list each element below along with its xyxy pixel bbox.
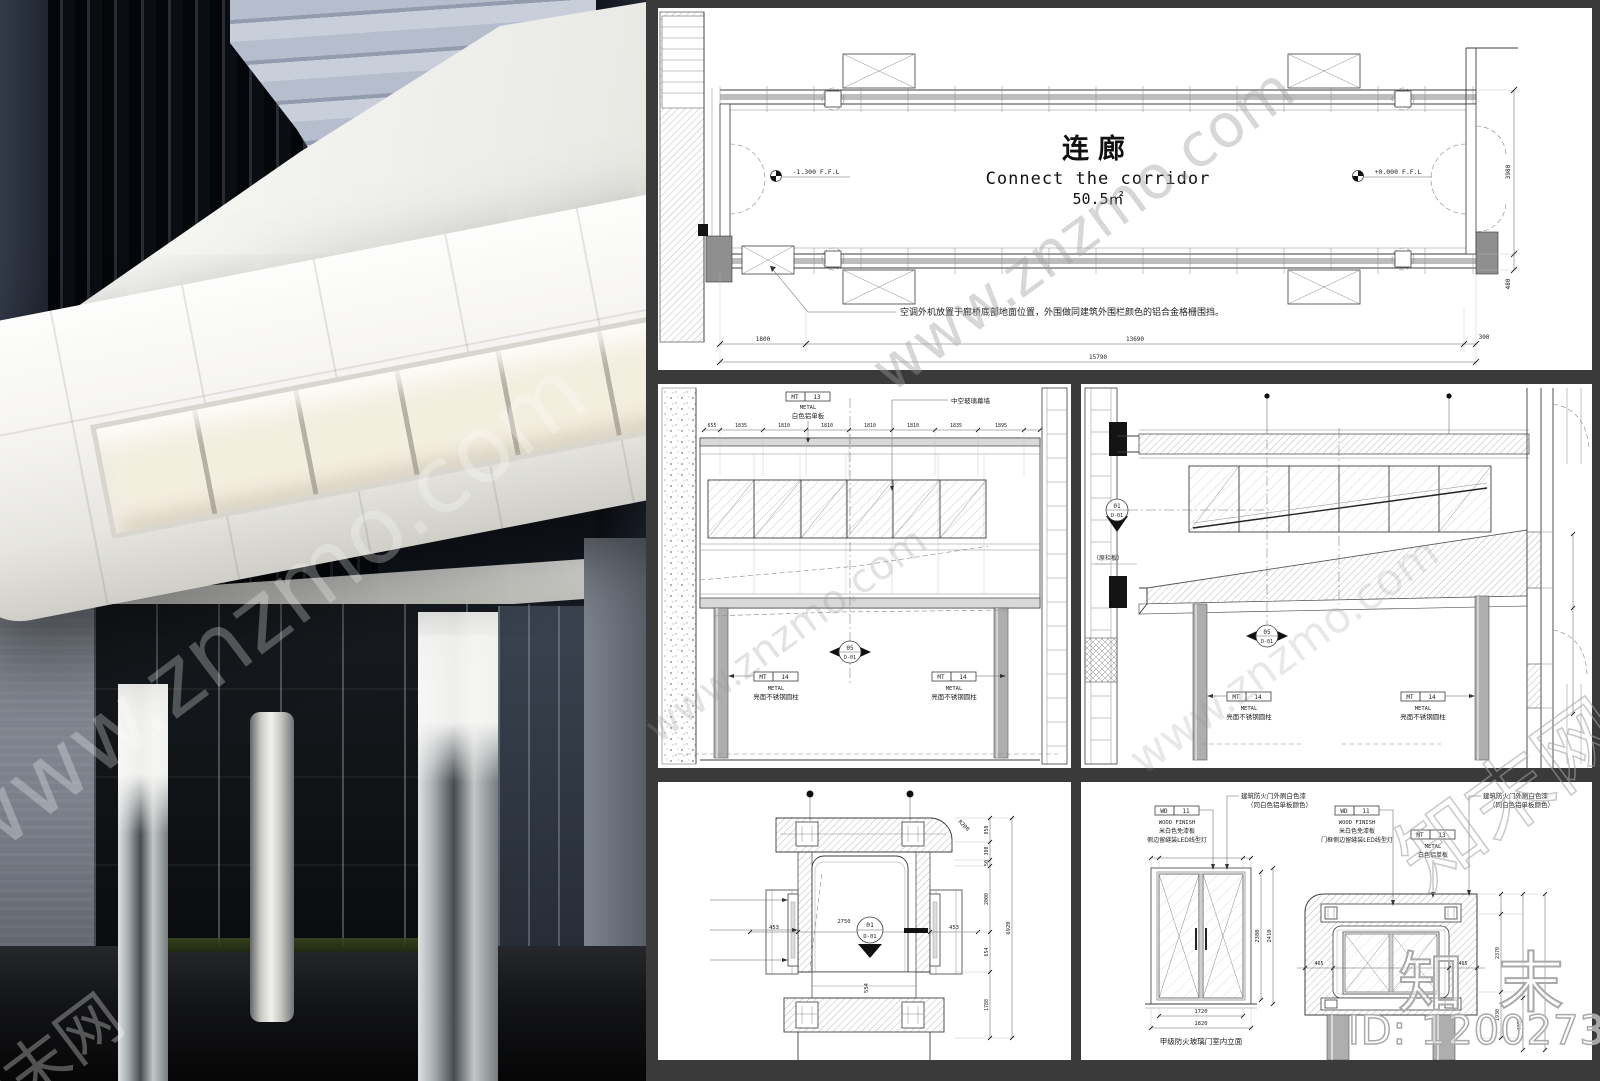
- dim-1800: 1800: [756, 336, 771, 343]
- tag-num: 14: [1254, 694, 1262, 701]
- existing-facade-strip: [1085, 388, 1127, 764]
- marker-num: 05: [846, 645, 854, 652]
- dim: 1810: [907, 423, 919, 429]
- tag-num: 14: [959, 674, 967, 681]
- level-right: +0.000 F.F.L: [1375, 168, 1422, 176]
- round-column: [250, 712, 294, 1022]
- roof-slab: [1117, 430, 1529, 458]
- label-existing: （原栏板）: [1093, 554, 1123, 562]
- pavement: [0, 946, 646, 1081]
- dim-total: 6920: [1006, 921, 1012, 934]
- dim: 380: [984, 846, 990, 855]
- door-panel: 1720 1820 2380 2410 甲级防火玻璃门室内立面: [1081, 782, 1592, 1060]
- dim: 1788: [984, 999, 990, 1011]
- ground-curtain-wall-right: [498, 606, 598, 974]
- right-wall: [1527, 388, 1589, 768]
- material-tag-mt13: MT 13 METAL 白色铝单板: [786, 392, 830, 443]
- existing-stair: [660, 12, 712, 342]
- dim-13690: 13690: [1126, 336, 1144, 343]
- dim: 655: [707, 423, 716, 429]
- bottom-walls: 554: [784, 972, 944, 1060]
- tag-mt: MT 13 METAL 白色铝单板: [1411, 830, 1455, 898]
- dim: 850: [984, 825, 990, 834]
- tag-num: 14: [1428, 694, 1436, 701]
- column-tag-left: MT 14 METAL 亮面不锈钢圆柱: [728, 672, 799, 701]
- dim-1720: 1720: [1194, 1009, 1207, 1015]
- leader-text-1: 建筑防火门外刷白色漆: [1241, 791, 1307, 800]
- dim: 50: [984, 860, 990, 866]
- note-text: 空调外机放置于廊桥底部地面位置，外围做同建筑外围栏颜色的铝合金格栅围挡。: [900, 306, 1224, 318]
- leader-text-1: 建筑防火门外刷白色漆: [1483, 791, 1549, 800]
- room-label: 连廊 Connect the corridor 50.5㎡: [986, 133, 1211, 208]
- tag-desc: 亮面不锈钢圆柱: [931, 692, 977, 701]
- bridge-elevation: [700, 438, 1040, 608]
- plan-note: 空调外机放置于廊桥底部地面位置，外围做同建筑外围栏颜色的铝合金格栅围挡。: [770, 266, 1224, 318]
- tag-code: WD: [1160, 808, 1168, 815]
- tag-wd-mid: WD 11 WOOD FINISH 米白色免漆板 门框侧边留缝装LED线型灯: [1321, 806, 1395, 906]
- tag-material: WOOD FINISH: [1339, 820, 1375, 826]
- room-name-en: Connect the corridor: [986, 169, 1211, 189]
- dim-2750: 2750: [837, 919, 850, 925]
- dim-15790: 15790: [1089, 354, 1107, 361]
- dim-300: 300: [1479, 334, 1490, 341]
- level-left: -1.300 F.F.L: [793, 168, 840, 176]
- tag-material: METAL: [768, 686, 785, 692]
- columns: [678, 608, 1058, 760]
- dim: 1835: [950, 423, 962, 429]
- tag-code: MT: [791, 394, 799, 401]
- tag-material: METAL: [1425, 844, 1442, 850]
- tag-num: 14: [781, 674, 789, 681]
- marker-sheet: D-01: [844, 655, 856, 661]
- chrome-column-left: [118, 684, 168, 1081]
- tag-code: MT: [1406, 694, 1414, 701]
- dim: 1810: [821, 423, 833, 429]
- stems: [1264, 393, 1451, 434]
- right-dimension-chain: 2370 1930 1555: [1477, 892, 1547, 1052]
- grid-bubbles: [807, 791, 914, 821]
- tag-desc2: 侧边留缝装LED线型灯: [1147, 836, 1207, 844]
- detail-marker-05: 05 D-01: [829, 641, 871, 663]
- leader-text-2: （同白色铝单板颜色）: [1247, 800, 1312, 809]
- tag-material: METAL: [946, 686, 963, 692]
- section-panel: 01 D-01 05 D-01 （原栏板） MT 14 ME: [1081, 384, 1592, 768]
- dim: 1835: [735, 423, 747, 429]
- tag-code: MT: [1232, 694, 1240, 701]
- inner-opening: [810, 856, 908, 972]
- tag-desc: 白色铝单板: [792, 411, 825, 420]
- dim-465-r: 465: [1458, 961, 1467, 967]
- plan-drawing: 连廊 Connect the corridor 50.5㎡ -1.300 F.F…: [658, 8, 1592, 370]
- dim: 1810: [778, 423, 790, 429]
- detail-drawing: R200 5: [658, 782, 1071, 1060]
- tag-desc1: 米白色免漆板: [1159, 827, 1195, 835]
- marker-num: 05: [1263, 629, 1271, 636]
- marker-sheet: D-01: [1111, 513, 1123, 519]
- leader-glass-text: 中空玻璃幕墙: [951, 396, 991, 405]
- plan-panel: 连廊 Connect the corridor 50.5㎡ -1.300 F.F…: [658, 8, 1592, 370]
- tag-desc2: 门框侧边留缝装LED线型灯: [1321, 836, 1393, 844]
- render-photo: [0, 0, 646, 1081]
- dim-465-l: 465: [1314, 961, 1323, 967]
- column-tag-right: MT 14 METAL 亮面不锈钢圆柱: [1400, 692, 1475, 721]
- page: 连廊 Connect the corridor 50.5㎡ -1.300 F.F…: [0, 0, 1600, 1081]
- tag-desc: 白色铝单板: [1418, 851, 1448, 859]
- tag-code: WD: [1340, 808, 1348, 815]
- dim-2410: 2410: [1267, 929, 1273, 942]
- dim: 2000: [984, 893, 990, 905]
- dim-554: 554: [864, 982, 870, 993]
- column-tag-left: MT 14 METAL 亮面不锈钢圆柱: [1207, 692, 1272, 721]
- tag-material: METAL: [1241, 706, 1258, 712]
- tag-desc1: 米白色免漆板: [1339, 827, 1375, 835]
- door-right-detail: 465 465: [1297, 894, 1485, 1060]
- dim: 1895: [995, 423, 1007, 429]
- chrome-column-right: [418, 612, 498, 1081]
- facade-ladder-strip: [1042, 388, 1067, 764]
- radius-label: R200: [957, 819, 971, 833]
- leader-text-2: （同白色铝单板颜色）: [1489, 800, 1554, 809]
- tag-num: 11: [1182, 808, 1190, 815]
- dim-480: 480: [1505, 278, 1512, 289]
- columns: [1193, 596, 1489, 760]
- dim: 1810: [864, 423, 876, 429]
- marker-num: 01: [1113, 503, 1121, 510]
- dim: 1930: [1495, 1009, 1501, 1021]
- glass-band: [1189, 466, 1491, 532]
- tag-code: MT: [759, 674, 767, 681]
- door-caption: 甲级防火玻璃门室内立面: [1160, 1036, 1243, 1046]
- dim: 2370: [1495, 947, 1501, 959]
- section-drawing: 01 D-01 05 D-01 （原栏板） MT 14 ME: [1081, 384, 1592, 768]
- room-area: 50.5㎡: [1072, 190, 1123, 208]
- existing-wall-section: [662, 388, 696, 764]
- tag-desc: 亮面不锈钢圆柱: [1226, 712, 1272, 721]
- plan-dimensions: 1800 13690 300 15790 3980 480: [717, 87, 1520, 366]
- door-left-elevation: 1720 1820 2380 2410 甲级防火玻璃门室内立面: [1145, 856, 1275, 1046]
- right-dimension-chain: 850 380 50 2000 654 1788 6920: [954, 816, 1016, 1040]
- tag-num: 13: [1438, 832, 1446, 839]
- sloped-floor-slab: [1139, 530, 1527, 614]
- dim: 654: [984, 947, 990, 956]
- tag-desc: 亮面不锈钢圆柱: [1400, 712, 1446, 721]
- tag-material: WOOD FINISH: [1159, 820, 1195, 826]
- marker-num: 01: [866, 921, 874, 929]
- top-wall-band: R200: [776, 818, 970, 852]
- elevation-panel: 05 D-01 MT 13 METAL 白色铝单板 中空玻璃幕墙 655 183: [658, 384, 1071, 768]
- paint-leader-right: 建筑防火门外刷白色漆 （同白色铝单板颜色）: [1467, 791, 1554, 896]
- marker-sheet: D-01: [863, 934, 876, 940]
- dim-1820: 1820: [1194, 1021, 1207, 1027]
- dim-2380: 2380: [1255, 929, 1261, 942]
- tag-material: METAL: [800, 405, 817, 411]
- elevation-drawing: 05 D-01 MT 13 METAL 白色铝单板 中空玻璃幕墙 655 183: [658, 384, 1071, 768]
- tag-wd-left: WD 11 WOOD FINISH 米白色免漆板 侧边留缝装LED线型灯: [1147, 806, 1215, 870]
- dim: 1555: [1517, 1018, 1523, 1030]
- door-drawing: 1720 1820 2380 2410 甲级防火玻璃门室内立面: [1081, 782, 1592, 1060]
- dim-453-l: 453: [769, 925, 779, 931]
- tag-desc: 亮面不锈钢圆柱: [753, 692, 799, 701]
- dim-453-r: 453: [949, 925, 959, 931]
- detail-panel: R200 5: [658, 782, 1071, 1060]
- tag-material: METAL: [1415, 706, 1432, 712]
- tag-num: 13: [813, 394, 821, 401]
- dim-3980: 3980: [1505, 164, 1512, 179]
- room-name-cn: 连廊: [1062, 133, 1134, 165]
- tag-num: 11: [1362, 808, 1370, 815]
- tag-code: MT: [937, 674, 945, 681]
- tag-code: MT: [1416, 832, 1424, 839]
- marker-sheet: D-01: [1261, 639, 1273, 645]
